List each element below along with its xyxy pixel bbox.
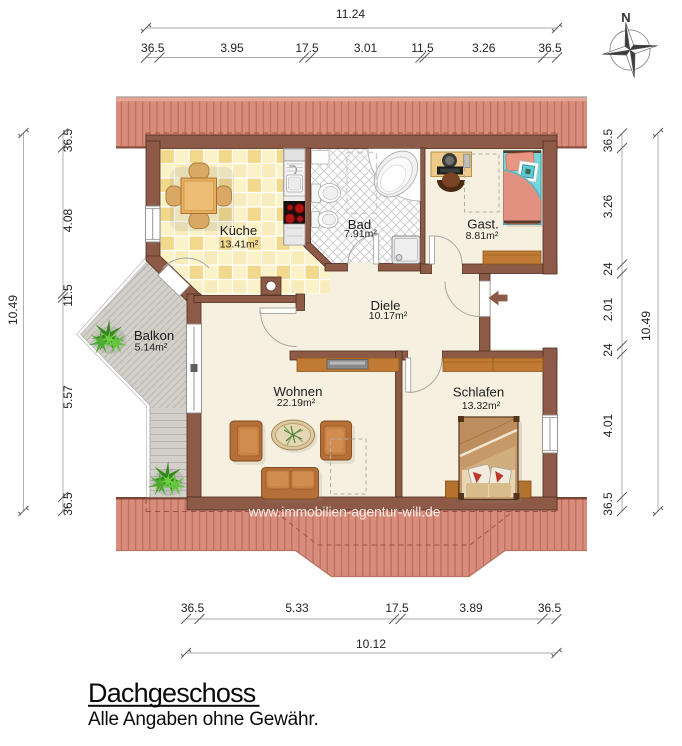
svg-text:36.5: 36.5 — [61, 492, 75, 516]
svg-text:24: 24 — [601, 262, 615, 276]
svg-text:36.5: 36.5 — [538, 601, 562, 615]
svg-text:10.49: 10.49 — [6, 295, 20, 325]
svg-text:www.immobilien-agentur-will.de: www.immobilien-agentur-will.de — [248, 505, 441, 520]
svg-text:36.5: 36.5 — [141, 41, 165, 55]
svg-text:10.49: 10.49 — [639, 311, 653, 341]
svg-text:17.5: 17.5 — [295, 41, 319, 55]
svg-text:36.5: 36.5 — [61, 128, 75, 152]
svg-text:Alle Angaben ohne Gewähr.: Alle Angaben ohne Gewähr. — [88, 709, 319, 730]
svg-text:36.5: 36.5 — [601, 492, 615, 516]
svg-text:24: 24 — [601, 343, 615, 357]
svg-text:11.5: 11.5 — [411, 41, 434, 55]
svg-text:8.81m²: 8.81m² — [466, 230, 499, 242]
svg-text:36.5: 36.5 — [181, 601, 205, 615]
svg-text:13.32m²: 13.32m² — [462, 400, 501, 412]
svg-text:3.95: 3.95 — [220, 41, 244, 55]
svg-text:5.57: 5.57 — [61, 385, 75, 409]
svg-text:4.08: 4.08 — [61, 208, 75, 232]
svg-text:36.5: 36.5 — [601, 128, 615, 152]
svg-text:10.17m²: 10.17m² — [369, 310, 408, 322]
svg-text:N: N — [621, 10, 630, 25]
svg-text:11.24: 11.24 — [336, 7, 365, 21]
svg-text:4.01: 4.01 — [601, 413, 615, 437]
svg-text:13.41m²: 13.41m² — [220, 239, 259, 251]
svg-text:Schlafen: Schlafen — [453, 385, 504, 400]
svg-text:10.12: 10.12 — [356, 637, 386, 651]
svg-text:3.26: 3.26 — [472, 41, 496, 55]
svg-text:Küche: Küche — [220, 223, 257, 238]
svg-text:7.91m²: 7.91m² — [344, 228, 377, 240]
svg-text:11.5: 11.5 — [61, 284, 75, 307]
svg-text:3.26: 3.26 — [601, 194, 615, 218]
svg-text:5.33: 5.33 — [285, 601, 309, 615]
svg-text:22.19m²: 22.19m² — [277, 397, 316, 409]
svg-text:Dachgeschoss: Dachgeschoss — [88, 678, 256, 708]
svg-text:17.5: 17.5 — [385, 601, 409, 615]
svg-text:36.5: 36.5 — [538, 41, 562, 55]
svg-text:3.89: 3.89 — [459, 601, 483, 615]
svg-text:3.01: 3.01 — [354, 41, 378, 55]
svg-text:5.14m²: 5.14m² — [135, 342, 168, 354]
svg-text:2.01: 2.01 — [601, 297, 615, 321]
